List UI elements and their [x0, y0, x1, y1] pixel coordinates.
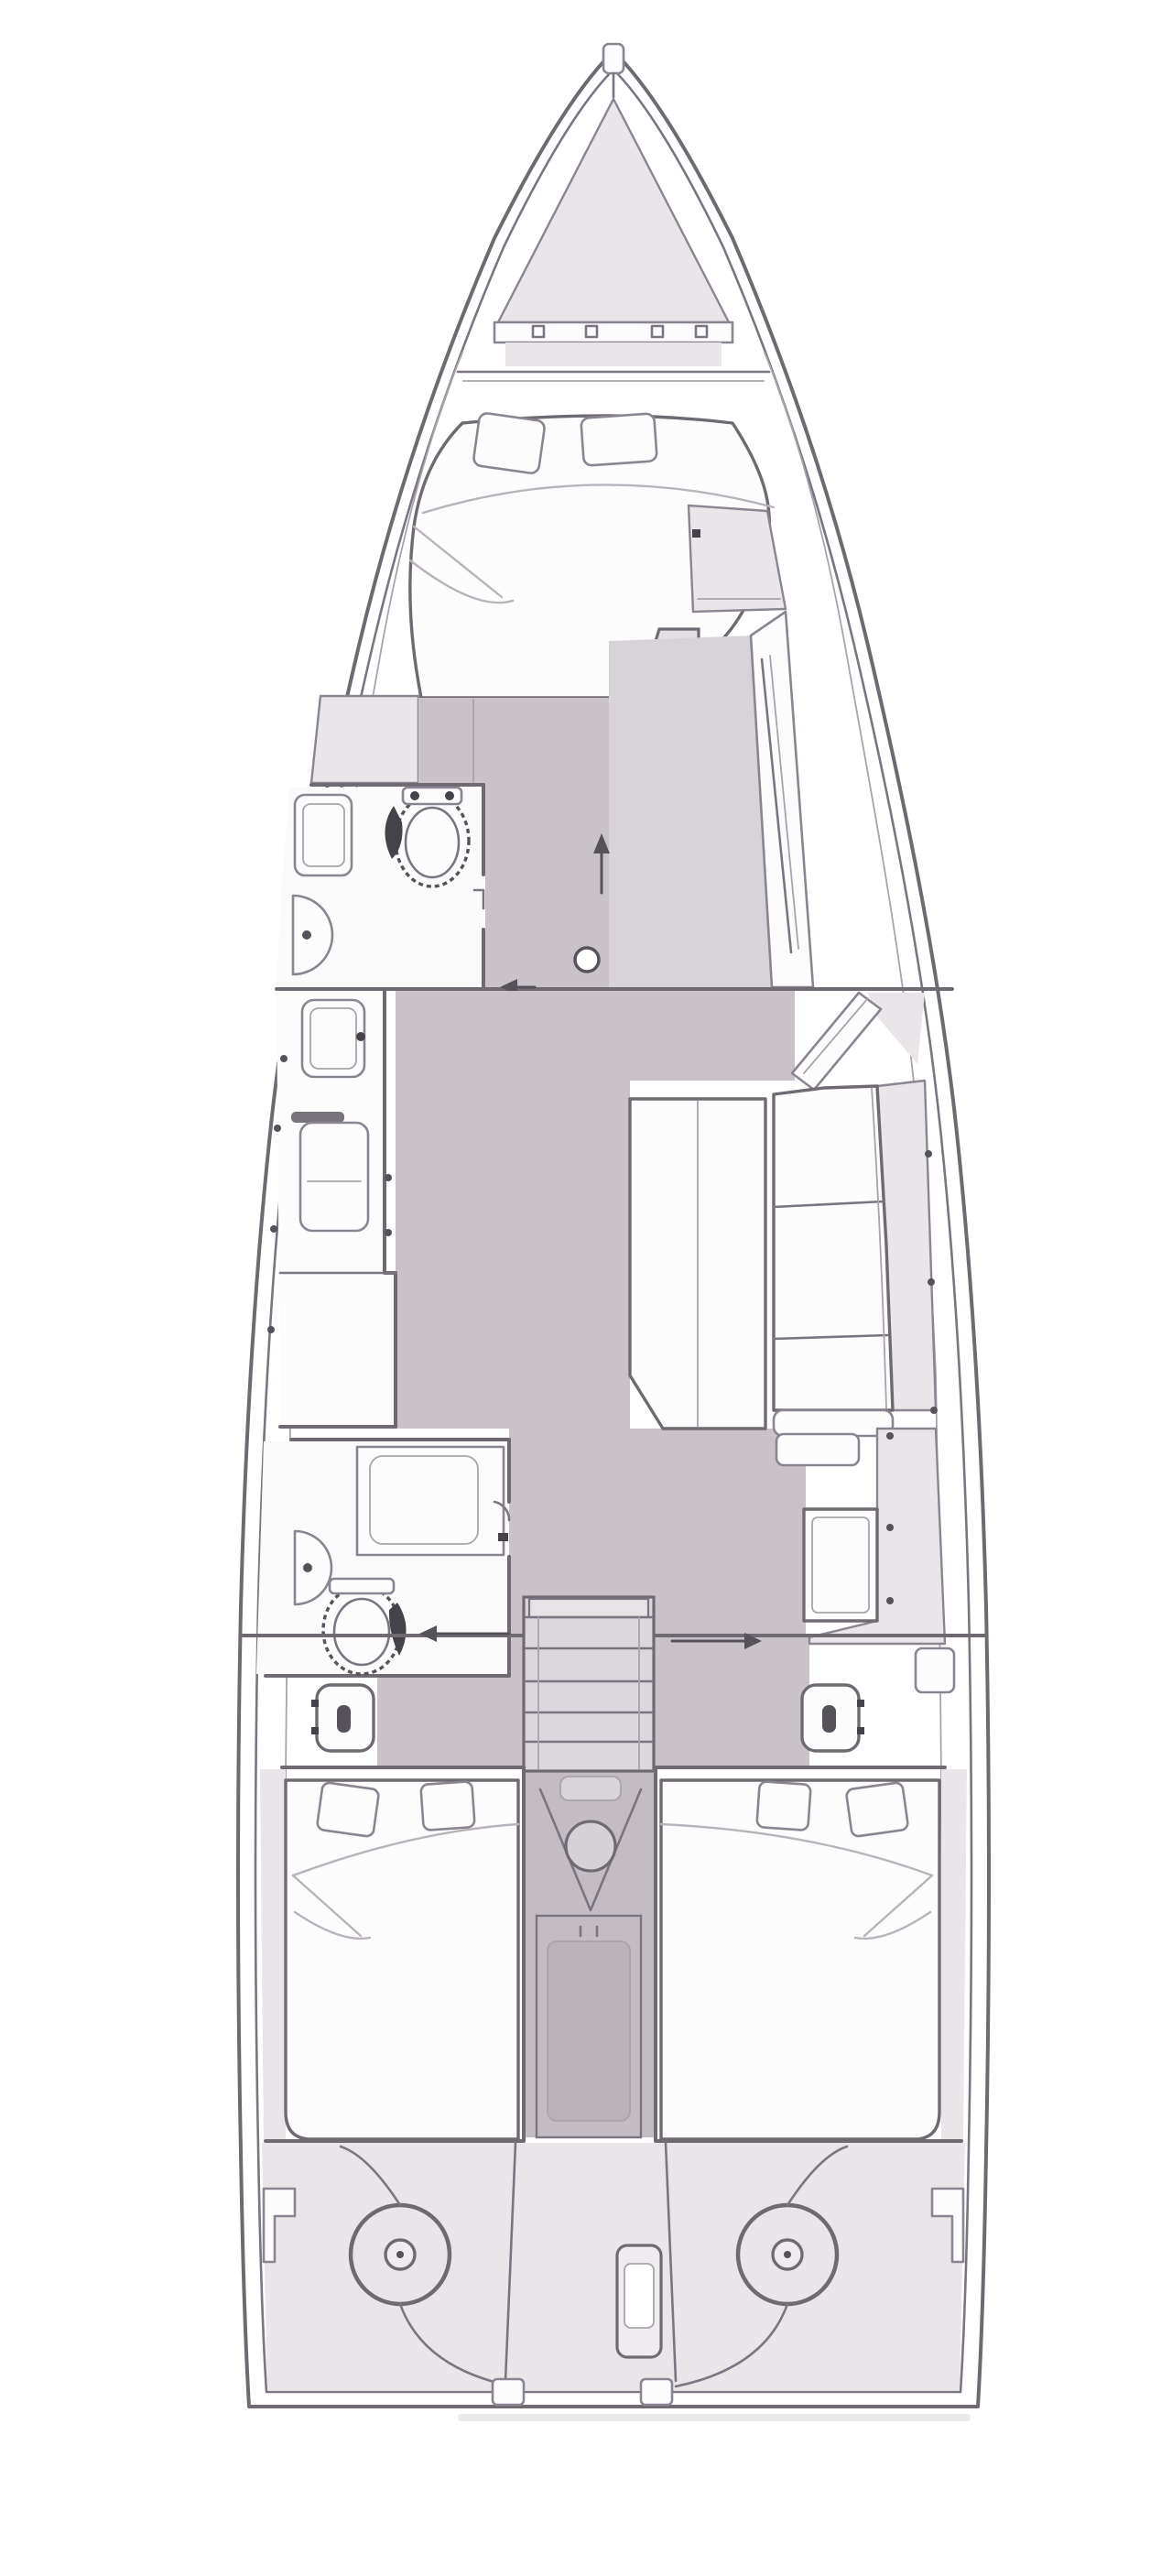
- aft-port-pillow-1: [317, 1782, 380, 1837]
- helm-hub-port-dot: [396, 2251, 404, 2258]
- galley-hinge-1: [385, 1174, 392, 1181]
- winch-port-slot: [337, 1705, 351, 1733]
- transom-tab-port: [493, 2379, 524, 2405]
- transom-deck: [262, 2143, 965, 2390]
- aft-head-sink-drain: [303, 1563, 312, 1572]
- aft-cabin-port: [260, 1767, 524, 2141]
- transom-tab-starboard: [641, 2379, 672, 2405]
- nav-hinge-3: [886, 1597, 894, 1604]
- aft-stbd-pillow-2: [846, 1782, 909, 1837]
- settee-shaded-corner: [868, 993, 925, 1064]
- chain-locker-band: [505, 342, 722, 366]
- shower-stall: [357, 1447, 504, 1555]
- aft-berth-starboard: [661, 1780, 939, 2139]
- settee-chaise: [792, 993, 881, 1090]
- bow-fitting: [603, 44, 624, 73]
- bow-anchor-locker: [458, 44, 769, 381]
- galley-hinge-3: [280, 1055, 288, 1062]
- locker-port-corner: [311, 696, 418, 783]
- winch-starboard-slot: [822, 1705, 836, 1733]
- aft-head: [256, 1440, 509, 1676]
- nav-hinge-1: [886, 1432, 894, 1440]
- hull-dot-p1: [274, 1125, 281, 1132]
- nav-bench: [776, 1434, 859, 1465]
- winch-port-tick-2: [311, 1727, 319, 1734]
- cockpit-transom: [262, 2143, 971, 2421]
- mast-post-ring: [575, 948, 599, 972]
- locker-tick: [692, 529, 700, 538]
- forward-head: [277, 785, 483, 989]
- aft-cabin-port-shelf: [260, 1769, 286, 2139]
- aft-toilet-tank: [330, 1579, 394, 1593]
- galley-faucet: [356, 1032, 365, 1041]
- stairs-box: [524, 1597, 654, 1771]
- locker-forward-starboard: [689, 505, 786, 612]
- hull-dot-s2: [928, 1278, 935, 1286]
- galley-fridge-handle: [291, 1112, 344, 1123]
- dressing-area-floor: [609, 636, 772, 987]
- nav-hinge-2: [886, 1524, 894, 1531]
- toilet-hinge-left: [410, 791, 419, 800]
- hull-dot-p2: [270, 1225, 277, 1233]
- galley: [277, 991, 396, 1427]
- forward-pillow-port: [472, 412, 545, 473]
- stairs-top-cap: [529, 1599, 648, 1617]
- chart-table: [804, 1509, 877, 1621]
- nav-locker: [916, 1648, 954, 1692]
- aft-port-pillow-2: [420, 1781, 474, 1831]
- transom-shadow: [458, 2414, 971, 2421]
- engine-hatch-top: [560, 1777, 621, 1800]
- forward-shower-drain: [302, 930, 311, 940]
- engine-circle: [566, 1821, 615, 1871]
- helm-hub-starboard-dot: [784, 2251, 791, 2258]
- hull-dot-s1: [925, 1150, 932, 1158]
- center-pedestal-inner: [624, 2264, 654, 2328]
- aft-cabin-stbd-shelf: [941, 1769, 967, 2139]
- hull-dot-p3: [267, 1326, 275, 1333]
- galley-hinge-2: [385, 1229, 392, 1236]
- winch-port-tick-1: [311, 1700, 319, 1707]
- aft-berth-port: [286, 1780, 518, 2139]
- settee-end-seat: [774, 1410, 893, 1436]
- anchor-locker-area: [498, 99, 729, 322]
- aft-stbd-pillow-1: [756, 1781, 810, 1831]
- yacht-floorplan-diagram: [0, 0, 1172, 2576]
- forward-pillow-starboard: [581, 413, 657, 465]
- hull-dot-s3: [930, 1407, 938, 1414]
- winch-starboard-tick-2: [857, 1727, 864, 1734]
- yacht-floorplan-page: [0, 0, 1172, 2576]
- engine-column-inner: [548, 1941, 630, 2121]
- aft-cabin-starboard: [656, 1767, 967, 2141]
- toilet-hinge-right: [445, 791, 454, 800]
- galley-fridge: [300, 1123, 368, 1231]
- winch-starboard-tick-1: [857, 1700, 864, 1707]
- companionway: [524, 1597, 654, 2137]
- aft-head-door-handle: [498, 1533, 508, 1541]
